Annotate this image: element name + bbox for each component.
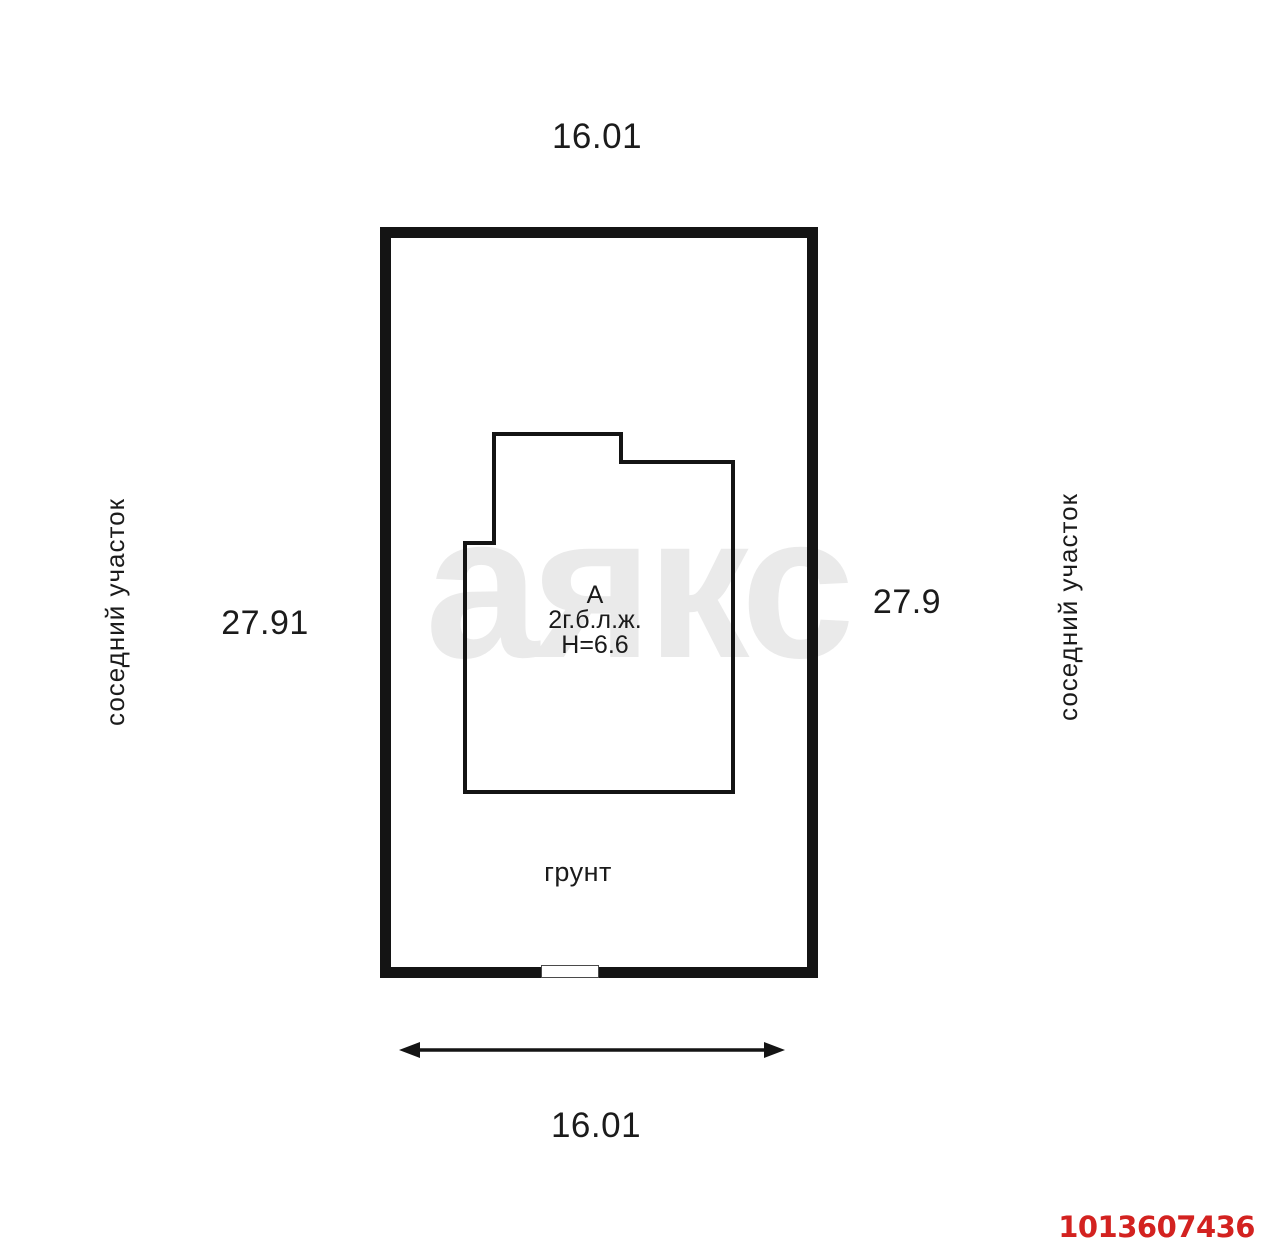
dimension-arrow-left-head <box>399 1042 420 1058</box>
listing-id: 1013607436 <box>1058 1213 1255 1242</box>
top-dimension-label: 16.01 <box>497 119 697 154</box>
right-neighbor-plot-label: соседний участок <box>1055 492 1081 722</box>
left-dimension-label: 27.91 <box>165 606 365 640</box>
left-neighbor-plot-label: соседний участок <box>102 497 128 727</box>
building-labels: А 2г.б.л.ж. Н=6.6 <box>495 583 695 658</box>
gate-opening <box>541 965 599 978</box>
right-dimension-label: 27.9 <box>807 585 1007 619</box>
building-type-label: 2г.б.л.ж. <box>495 608 695 633</box>
ground-label: грунт <box>478 859 678 886</box>
building-height-label: Н=6.6 <box>495 633 695 658</box>
dimension-arrow-right-head <box>764 1042 785 1058</box>
dimension-arrow <box>398 1037 786 1063</box>
site-plan-canvas: аякс 16.01 27.91 27.9 16.01 соседний уча… <box>0 0 1280 1248</box>
bottom-dimension-label: 16.01 <box>496 1108 696 1143</box>
building-letter: А <box>495 583 695 608</box>
